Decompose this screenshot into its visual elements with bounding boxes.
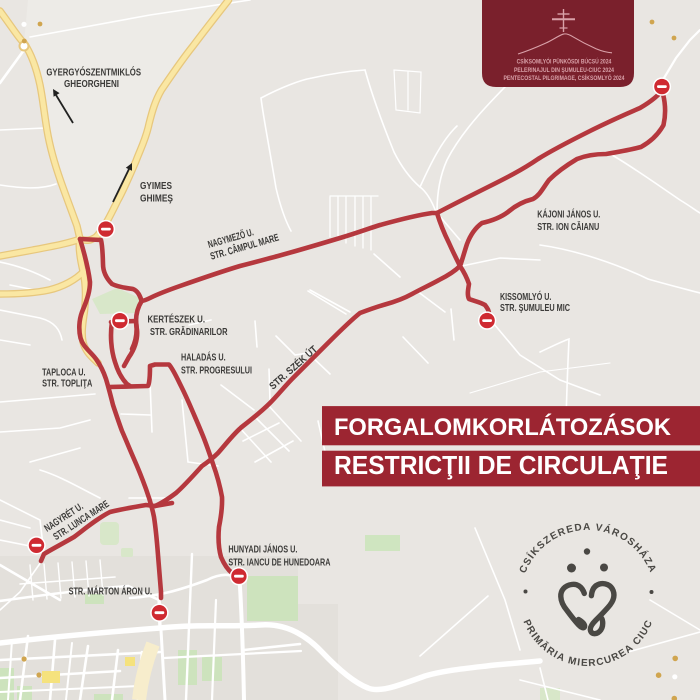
svg-text:STR. TOPLIŢA: STR. TOPLIŢA <box>42 379 93 390</box>
svg-text:TAPLOCA U.: TAPLOCA U. <box>42 368 86 379</box>
svg-text:PELERINAJUL DIN ŞUMULEU-CIUC 2: PELERINAJUL DIN ŞUMULEU-CIUC 2024 <box>514 67 614 74</box>
svg-text:STR. ŞUMULEU MIC: STR. ŞUMULEU MIC <box>500 303 570 314</box>
svg-text:STR. ION CĂIANU: STR. ION CĂIANU <box>537 220 599 233</box>
svg-text:KÁJONI JÁNOS U.: KÁJONI JÁNOS U. <box>537 208 600 221</box>
svg-text:KERTÉSZEK U.: KERTÉSZEK U. <box>148 313 206 326</box>
svg-text:HALADÁS U.: HALADÁS U. <box>181 351 226 364</box>
svg-text:FORGALOMKORLÁTOZÁSOK: FORGALOMKORLÁTOZÁSOK <box>334 413 671 441</box>
svg-text:STR. IANCU DE HUNEDOARA: STR. IANCU DE HUNEDOARA <box>228 558 330 569</box>
svg-text:GYIMES: GYIMES <box>140 181 172 192</box>
svg-text:STR. PROGRESULUI: STR. PROGRESULUI <box>181 366 252 377</box>
svg-text:GHEORGHENI: GHEORGHENI <box>64 79 119 90</box>
svg-text:GYERGYÓSZENTMIKLÓS: GYERGYÓSZENTMIKLÓS <box>46 66 141 79</box>
svg-text:GHIMEŞ: GHIMEŞ <box>140 193 173 204</box>
svg-text:RESTRICŢII DE CIRCULAŢIE: RESTRICŢII DE CIRCULAŢIE <box>334 450 668 480</box>
svg-text:STR. GRĂDINARILOR: STR. GRĂDINARILOR <box>150 325 228 338</box>
svg-text:HUNYADI JÁNOS U.: HUNYADI JÁNOS U. <box>228 543 297 556</box>
svg-text:CSÍKSOMLYÓI PÜNKÖSDI BÚCSÚ 202: CSÍKSOMLYÓI PÜNKÖSDI BÚCSÚ 2024 <box>517 57 612 66</box>
svg-text:PENTECOSTAL PILGRIMAGE, CSÍKSO: PENTECOSTAL PILGRIMAGE, CSÍKSOMLYÓ 2024 <box>504 73 625 82</box>
svg-text:STR. MÁRTON ÁRON U.: STR. MÁRTON ÁRON U. <box>69 585 153 598</box>
svg-text:KISSOMLYÓ U.: KISSOMLYÓ U. <box>500 290 552 303</box>
